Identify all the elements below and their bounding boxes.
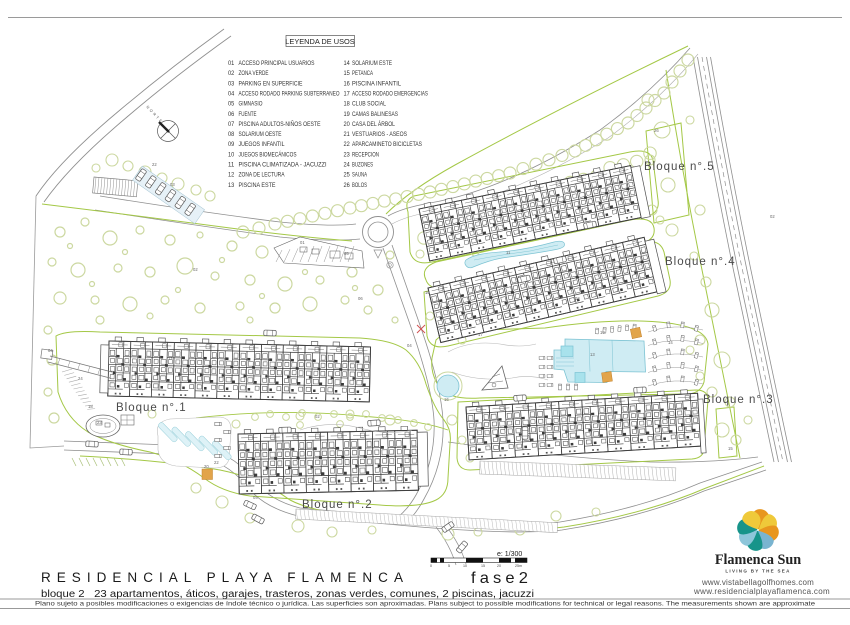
svg-text:ACCESO RODADO PARKING SUBTERRA: ACCESO RODADO PARKING SUBTERRANEO: [239, 92, 340, 98]
svg-text:23: 23: [344, 152, 351, 158]
svg-text:08: 08: [228, 132, 235, 138]
svg-text:bloque 2 23 apartamentos, át: bloque 2 23 apartamentos, áticos, garaje…: [41, 589, 534, 600]
svg-text:25m: 25m: [515, 564, 522, 568]
svg-text:5: 5: [448, 564, 450, 568]
svg-text:04: 04: [48, 348, 53, 353]
svg-text:24: 24: [344, 163, 351, 169]
svg-text:14: 14: [344, 61, 351, 67]
svg-text:RESIDENCIAL PLAYA FLAMENCA: RESIDENCIAL PLAYA FLAMENCA: [41, 570, 409, 585]
svg-text:01: 01: [228, 61, 235, 67]
svg-text:01: 01: [300, 240, 305, 245]
svg-text:05: 05: [344, 251, 349, 256]
svg-text:04: 04: [407, 343, 412, 348]
svg-text:PETANCA: PETANCA: [352, 71, 373, 77]
svg-text:ZONA VERDE: ZONA VERDE: [239, 71, 269, 77]
svg-text:20: 20: [204, 464, 209, 469]
svg-text:www.residencialplayaflamenca.c: www.residencialplayaflamenca.com: [693, 587, 830, 596]
svg-text:13: 13: [228, 183, 235, 189]
svg-text:Bloque n°.5: Bloque n°.5: [644, 161, 715, 173]
svg-text:BOLOS: BOLOS: [352, 183, 367, 189]
svg-text:22: 22: [152, 162, 157, 167]
svg-text:25: 25: [344, 173, 351, 179]
svg-text:26: 26: [344, 183, 351, 189]
svg-text:12: 12: [168, 356, 173, 361]
svg-text:11: 11: [506, 250, 511, 255]
svg-text:CASA DEL ÁRBOL: CASA DEL ÁRBOL: [352, 121, 396, 128]
svg-text:02: 02: [228, 71, 235, 77]
svg-text:LIVING BY THE SEA: LIVING BY THE SEA: [725, 569, 790, 574]
svg-text:Bloque n°.3: Bloque n°.3: [703, 394, 774, 406]
svg-text:www.vistabellagolfhomes.com: www.vistabellagolfhomes.com: [701, 578, 814, 587]
svg-text:PISCINA INFANTIL: PISCINA INFANTIL: [352, 81, 402, 87]
svg-text:03: 03: [228, 81, 235, 87]
svg-text:13: 13: [590, 352, 595, 357]
svg-text:CAMAS BALINESAS: CAMAS BALINESAS: [352, 112, 398, 118]
svg-text:JUEGOS INFANTIL: JUEGOS INFANTIL: [239, 142, 286, 148]
svg-text:APARCAMINETO BICICLETAS: APARCAMINETO BICICLETAS: [352, 142, 422, 148]
svg-text:23: 23: [97, 420, 102, 425]
svg-text:e: 1/300: e: 1/300: [497, 551, 522, 558]
svg-text:26: 26: [654, 128, 659, 133]
svg-text:02: 02: [315, 414, 320, 419]
svg-text:04: 04: [253, 495, 258, 500]
svg-text:21: 21: [344, 132, 351, 138]
svg-text:16: 16: [444, 397, 449, 402]
svg-text:RECEPCION: RECEPCION: [352, 152, 379, 158]
svg-text:19: 19: [600, 330, 605, 335]
svg-text:09: 09: [228, 142, 235, 148]
svg-text:18: 18: [88, 404, 93, 409]
svg-text:JUEGOS BIOMECÁNICOS: JUEGOS BIOMECÁNICOS: [239, 151, 297, 158]
svg-text:SOLARIUM OESTE: SOLARIUM OESTE: [239, 132, 282, 138]
svg-text:22: 22: [214, 460, 219, 465]
svg-text:PARKING EN SUPERFICIE: PARKING EN SUPERFICIE: [239, 81, 303, 87]
svg-text:Bloque n°.1: Bloque n°.1: [116, 402, 187, 414]
svg-text:05: 05: [228, 102, 235, 108]
svg-text:CLUB SOCIAL: CLUB SOCIAL: [352, 102, 387, 108]
svg-text:11: 11: [228, 163, 235, 169]
svg-text:15: 15: [344, 71, 351, 77]
svg-text:06: 06: [358, 296, 363, 301]
svg-text:10: 10: [425, 290, 430, 295]
svg-text:FUENTE: FUENTE: [239, 112, 257, 118]
svg-text:PISCINA ESTE: PISCINA ESTE: [239, 183, 276, 189]
svg-text:04: 04: [228, 92, 235, 98]
svg-text:15: 15: [481, 564, 485, 568]
svg-text:LEYENDA DE USOS: LEYENDA DE USOS: [285, 37, 354, 46]
svg-text:02: 02: [193, 267, 198, 272]
svg-text:ZONA DE LECTURA: ZONA DE LECTURA: [239, 173, 285, 179]
svg-text:PISCINA ADULTOS-NIÑOS OESTE: PISCINA ADULTOS-NIÑOS OESTE: [239, 121, 321, 128]
svg-text:06: 06: [228, 112, 235, 118]
svg-text:ACCESO RODADO EMERGENCIAS: ACCESO RODADO EMERGENCIAS: [352, 92, 428, 98]
svg-text:15: 15: [728, 446, 733, 451]
svg-text:12: 12: [228, 173, 235, 179]
svg-text:17: 17: [344, 92, 351, 98]
svg-text:Bloque n°.4: Bloque n°.4: [665, 256, 736, 268]
svg-text:17: 17: [478, 332, 483, 337]
svg-text:BUZONES: BUZONES: [352, 163, 373, 169]
svg-text:SOLARIUM ESTE: SOLARIUM ESTE: [352, 61, 392, 67]
svg-text:14: 14: [668, 340, 673, 345]
svg-text:SAUNA: SAUNA: [352, 173, 367, 179]
svg-text:GIMNASIO: GIMNASIO: [239, 102, 263, 108]
svg-text:Plano sujeto a posibles modifi: Plano sujeto a posibles modificaciones o…: [35, 601, 816, 608]
svg-text:20: 20: [497, 564, 501, 568]
svg-text:ACCESO PRINCIPAL USUARIOS: ACCESO PRINCIPAL USUARIOS: [239, 61, 315, 67]
svg-text:fase2: fase2: [471, 570, 532, 587]
svg-text:03: 03: [170, 182, 175, 187]
svg-text:10: 10: [228, 152, 235, 158]
svg-text:Bloque n°.2: Bloque n°.2: [302, 499, 373, 511]
svg-text:Flamenca Sun: Flamenca Sun: [715, 552, 801, 568]
svg-text:18: 18: [344, 102, 351, 108]
svg-text:22: 22: [344, 142, 351, 148]
svg-text:10: 10: [463, 564, 467, 568]
svg-text:16: 16: [344, 81, 351, 87]
svg-text:VESTUARIOS - ASEOS: VESTUARIOS - ASEOS: [352, 132, 407, 138]
svg-text:02: 02: [575, 296, 580, 301]
svg-text:20: 20: [344, 122, 351, 128]
svg-text:0: 0: [430, 564, 432, 568]
svg-text:02: 02: [770, 214, 775, 219]
svg-text:07: 07: [228, 122, 235, 128]
svg-text:24: 24: [78, 376, 83, 381]
svg-text:19: 19: [344, 112, 351, 118]
svg-text:PISCINA CLIMATIZADA - JACUZZI: PISCINA CLIMATIZADA - JACUZZI: [239, 163, 327, 169]
